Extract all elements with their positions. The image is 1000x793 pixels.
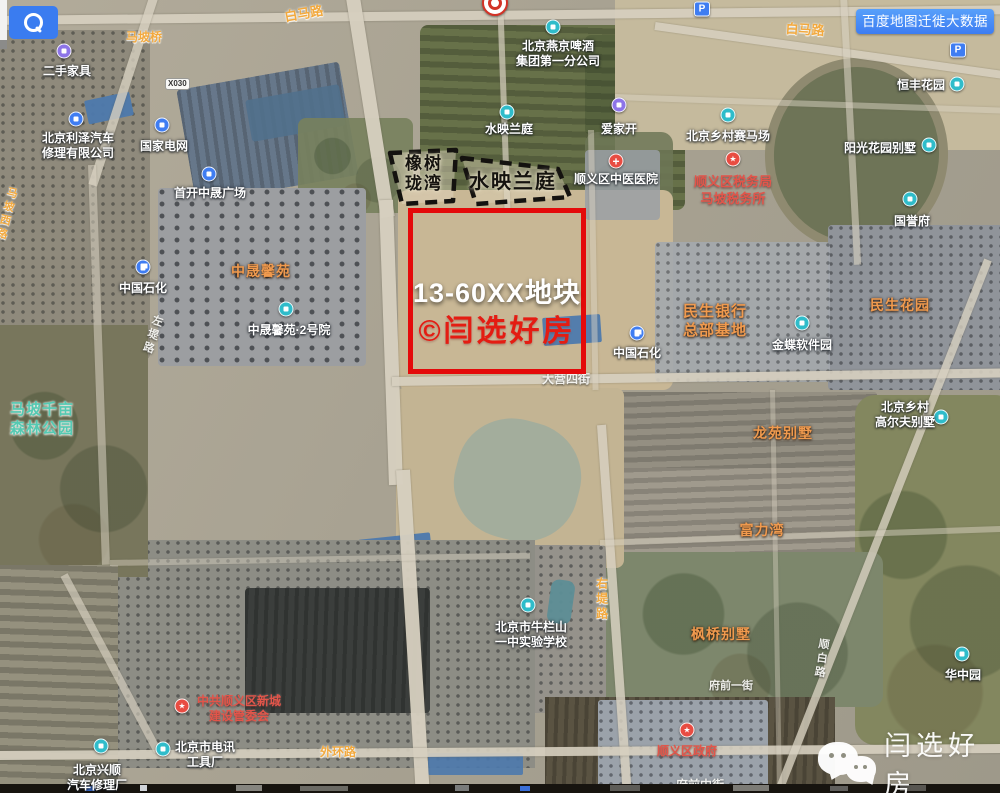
wechat-bubble-small (846, 756, 876, 782)
wechat-icon (818, 739, 874, 787)
terrain-patch (396, 388, 624, 568)
terrain-patch (0, 565, 118, 790)
map-label[interactable]: 白马路 (283, 3, 324, 26)
search-icon (24, 13, 43, 32)
map-label[interactable]: 顺义区政府 (657, 744, 717, 759)
map-label[interactable]: 中晟馨苑 (231, 263, 291, 281)
map-label[interactable]: 华中园 (945, 668, 981, 683)
terrain-patch (176, 62, 358, 204)
blue-icon[interactable] (69, 112, 84, 127)
blue-icon[interactable] (202, 167, 217, 182)
map-label[interactable]: 北京兴顺汽车修理厂 (67, 763, 127, 793)
teal-icon[interactable] (279, 302, 294, 317)
map-label[interactable]: 二手家具 (43, 64, 91, 79)
redstar-icon[interactable]: ★ (680, 723, 695, 738)
terrain-patch (358, 532, 434, 577)
road-line (110, 553, 530, 566)
map-label[interactable]: 国家电网 (140, 139, 188, 154)
terrain-patch (84, 91, 134, 124)
search-button[interactable] (9, 6, 58, 39)
teal-icon[interactable] (721, 108, 736, 123)
teal-icon[interactable] (500, 105, 515, 120)
road-line (88, 165, 110, 565)
label-fragment (733, 785, 769, 791)
map-label[interactable]: 外环路 (320, 745, 356, 760)
map-label[interactable]: 水映兰庭 (469, 171, 557, 194)
map-label[interactable]: 北京乡村赛马场 (686, 129, 770, 144)
map-label[interactable]: 爱家开 (601, 122, 637, 137)
brand-watermark-text: 闫选好房 (884, 724, 1000, 793)
map-label[interactable]: 中晟馨苑·2号院 (248, 323, 331, 338)
map-label[interactable]: 北京乡村高尔夫别墅 (875, 400, 935, 431)
teal-icon[interactable] (521, 598, 536, 613)
road-line (60, 573, 161, 753)
terrain-patch (298, 118, 413, 213)
map-label[interactable]: 中国石化 (119, 281, 167, 296)
teal-icon[interactable] (934, 410, 949, 425)
road-shield-x030: X030 (165, 78, 190, 90)
map-label[interactable]: 顺义区税务局马坡税务所 (694, 174, 772, 207)
brand-watermark: 闫选好房 (818, 724, 1000, 793)
map-label[interactable]: 顺义区中医医院 (574, 172, 658, 187)
teal-icon[interactable] (950, 77, 965, 92)
map-label[interactable]: 北京市电讯工具厂 (175, 740, 235, 771)
label-fragment (520, 786, 530, 791)
label-fragment (140, 785, 147, 791)
map-label[interactable]: 水映兰庭 (485, 122, 533, 137)
label-fragment (610, 785, 640, 791)
teal-icon[interactable] (955, 647, 970, 662)
plot-watermark-credit: ©闫选好房 (418, 306, 575, 350)
blue-icon[interactable] (155, 118, 170, 133)
collapsed-panel-edge (0, 0, 7, 40)
parking-icon[interactable]: P (694, 2, 710, 17)
map-label[interactable]: 金蝶软件园 (772, 338, 832, 353)
terrain-patch (115, 540, 535, 768)
terrain-patch (585, 132, 673, 257)
terrain-patch (442, 406, 594, 554)
highlighted-land-plot: 13-60XX地块 ©闫选好房 (408, 208, 586, 374)
map-label[interactable]: 马坡西路 (0, 185, 20, 243)
label-fragment (455, 785, 469, 791)
map-label[interactable]: 白马路 (785, 21, 825, 40)
purple-icon[interactable] (612, 98, 627, 113)
map-label[interactable]: 北京利泽汽车修理有限公司 (42, 131, 114, 162)
terrain-patch (0, 325, 148, 577)
road-line (840, 0, 861, 265)
road-line (588, 130, 599, 390)
collapsed-panel-edge-gray (0, 40, 7, 49)
map-label[interactable]: 富力湾 (740, 522, 785, 540)
map-label[interactable]: 民生银行总部基地 (683, 302, 747, 340)
teal-icon[interactable] (546, 20, 561, 35)
fuel-icon[interactable] (136, 260, 151, 275)
terrain-patch (545, 697, 835, 789)
redstar-icon[interactable]: ★ (726, 152, 741, 167)
fuel-icon[interactable] (630, 326, 645, 341)
road-line (396, 470, 430, 793)
terrain-patch (436, 550, 500, 592)
map-label[interactable]: 府前一街 (709, 679, 753, 693)
map-label[interactable]: 恒丰花园 (897, 78, 945, 93)
map-label[interactable]: 北京燕京啤酒集团第一分公司 (516, 39, 600, 70)
map-label[interactable]: 右堤路 (593, 577, 608, 622)
terrain-patch (428, 753, 523, 775)
map-label[interactable]: 大营四街 (542, 372, 590, 387)
map-label[interactable]: 马坡桥 (126, 30, 162, 45)
purple-icon[interactable] (57, 44, 72, 59)
map-label[interactable]: 龙苑别墅 (753, 425, 813, 443)
teal-icon[interactable] (156, 742, 171, 757)
terrain-patch (615, 392, 877, 477)
plot-title: 13-60XX地块 (413, 271, 581, 310)
redstar-icon[interactable]: ★ (175, 699, 190, 714)
road-line (615, 94, 1000, 114)
terrain-patch (855, 395, 1000, 745)
teal-icon[interactable] (922, 138, 937, 153)
terrain-patch (245, 84, 346, 142)
redcross-icon[interactable]: + (609, 154, 624, 169)
dashed-zone-overlay (0, 0, 1000, 793)
map-label[interactable]: 阳光花园别墅 (844, 141, 916, 156)
road-line (344, 0, 395, 218)
road-line (379, 200, 403, 485)
map-label[interactable]: 中共顺义区新城建设管委会 (197, 694, 281, 725)
map-label[interactable]: 马坡千亩森林公园 (10, 400, 74, 438)
road-line (770, 390, 782, 790)
terrain-patch (546, 579, 576, 626)
map-label[interactable]: 国誉府 (894, 214, 930, 229)
map-label[interactable]: 北京市牛栏山一中实验学校 (495, 620, 567, 651)
map-label[interactable]: 中国石化 (613, 346, 661, 361)
map-label[interactable]: 首开中晟广场 (174, 186, 246, 201)
road-line (600, 526, 1000, 546)
map-label[interactable]: 顺白路 (811, 637, 831, 681)
baidu-map-satellite-view[interactable]: 13-60XX地块 ©闫选好房 二手家具北京利泽汽车修理有限公司国家电网首开中晟… (0, 0, 1000, 793)
teal-icon[interactable] (795, 316, 810, 331)
target-icon[interactable] (482, 0, 508, 16)
parking-icon[interactable]: P (950, 43, 966, 58)
label-fragment (300, 786, 348, 791)
label-fragment (236, 785, 262, 791)
map-label[interactable]: 左堤路 (139, 313, 165, 357)
map-label[interactable]: 枫桥别墅 (691, 626, 751, 644)
teal-icon[interactable] (903, 192, 918, 207)
map-label[interactable]: 民生花园 (870, 297, 930, 315)
terrain-patch (0, 30, 150, 360)
teal-icon[interactable] (94, 739, 109, 754)
migration-data-button[interactable]: 百度地图迁徙大数据 (856, 9, 994, 34)
map-label[interactable]: 橡树珑湾 (405, 154, 443, 193)
